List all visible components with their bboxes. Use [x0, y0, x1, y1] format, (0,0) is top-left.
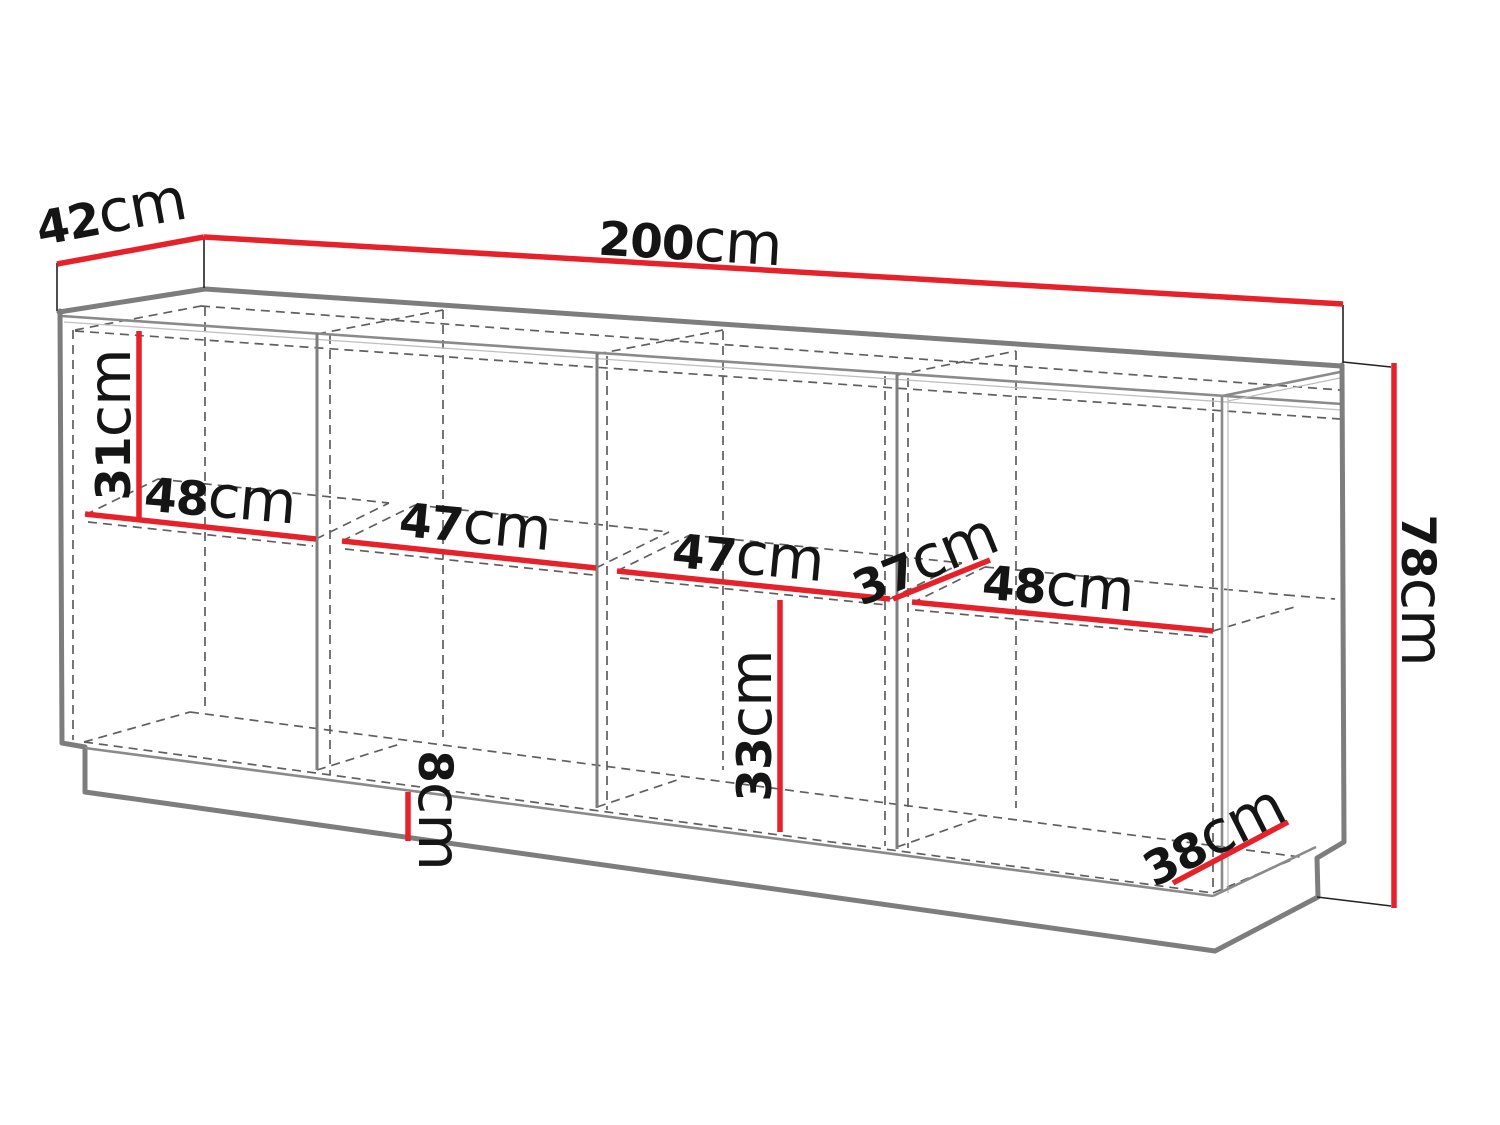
dimension-labels: 42cm 200cm 78cm 31cm 48cm 47cm 47cm 37cm…: [30, 164, 1457, 900]
interior-dashed-lines: [73, 306, 1340, 893]
label-lower-section-height: 33cm: [716, 650, 785, 801]
divider2-top-depth-edge: [597, 330, 723, 354]
shelf4-right-depth-edge: [1213, 606, 1298, 631]
height-extension-line-bottom: [1317, 897, 1391, 906]
body-left-edge: [60, 311, 62, 743]
furniture-dimension-diagram: 42cm 200cm 78cm 31cm 48cm 47cm 47cm 37cm…: [0, 0, 1500, 1125]
divider3-top-depth-edge: [897, 351, 1016, 375]
label-upper-section-height: 31cm: [75, 349, 144, 500]
ceiling-front-edge: [62, 316, 1342, 404]
shelf4-back-edge-extension: [1286, 595, 1335, 599]
label-plinth-height: 8cm: [405, 750, 474, 870]
body-right-edge: [1342, 365, 1344, 841]
ceiling-back-edge: [201, 306, 1340, 390]
floor-depth-edge-divider2: [597, 779, 680, 807]
ceiling-front-edge-highlight: [64, 322, 1342, 410]
sideboard-line-drawing: 42cm 200cm 78cm 31cm 48cm 47cm 47cm 37cm…: [0, 0, 1500, 1125]
label-height-total: 78cm: [1388, 514, 1457, 665]
shelf1-right-depth-edge: [316, 503, 389, 539]
top-slab-bottom-edge: [59, 289, 1341, 366]
right-wall-top-depth-edge: [1222, 372, 1340, 396]
label-compartment3-width: 47cm: [670, 512, 827, 595]
floor-left-depth-edge: [84, 712, 190, 742]
floor-depth-edge-divider3: [897, 818, 980, 847]
label-width-total: 200cm: [597, 200, 784, 280]
divider1-top-depth-edge: [317, 310, 443, 334]
back-panel-top-edge: [75, 331, 1340, 419]
height-extension-line-top: [1343, 362, 1391, 367]
